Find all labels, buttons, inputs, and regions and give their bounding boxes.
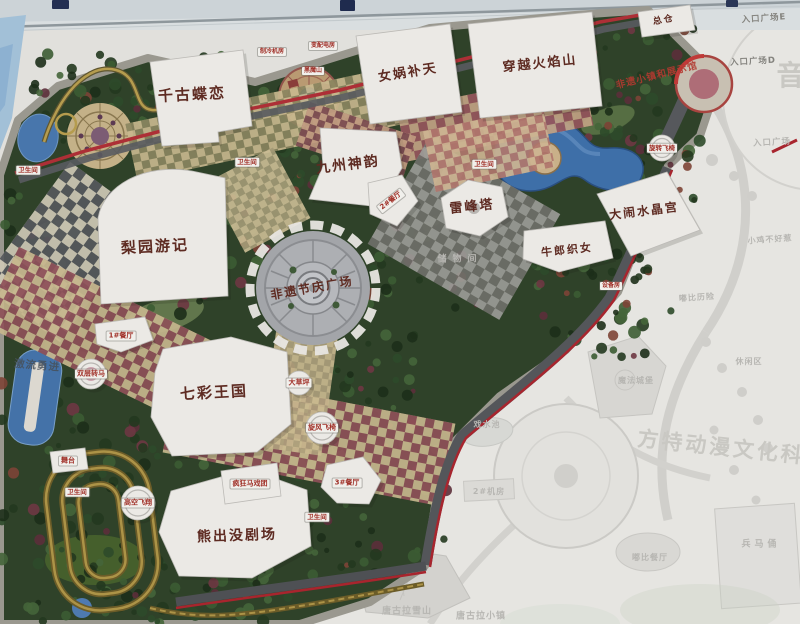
label-restaurant-3: 3#餐厅 [333,479,362,488]
label-xishuichi: 戏水池 [474,421,501,429]
label-dubi-lixian: 嘟比历险 [679,293,715,303]
label-qiangu-dielian: 千古蝶恋 [158,86,227,105]
park-map-photo: 千古蝶恋女娲补天穿越火焰山总仓九州神韵雷峰塔大闹水晶宫牛郎织女梨园游记非遗节庆广… [0,0,800,624]
label-mofa-chengbao: 魔法城堡 [618,377,654,385]
label-stage: 舞台 [59,457,77,466]
label-toilet-south: 卫生间 [305,513,329,522]
label-jiuzhou-shenyun: 九州神韵 [315,154,380,176]
label-gaokong-feixiang: 高空飞翔 [122,499,154,508]
label-chuanyue-huoyanshan: 穿越火焰山 [502,54,578,75]
label-dubi-canting: 嘟比餐厅 [632,554,668,562]
label-restaurant-2: 2#餐厅 [377,189,405,214]
label-xiongchumo-theater: 熊出没剧场 [197,528,277,545]
label-xiuxianqu: 休闲区 [736,358,763,366]
label-watermark-fantawild: 方特动漫文化科技 [636,429,800,470]
label-dacaoping: 大草坪 [287,379,312,388]
label-entrance-plaza-d: 入口广场D [730,57,776,68]
label-toilet-southwest: 卫生间 [65,488,89,497]
label-chuwujian: 储物间 [437,256,482,265]
label-tanggula-xiaozhen: 唐古拉小镇 [456,613,506,622]
label-watermark-partial: 音 [776,62,800,90]
label-xuanfeng-feiyi: 旋风飞椅 [306,424,338,433]
label-qicai-wangguo: 七彩王国 [180,384,249,403]
label-zhileng-jifang: 制冷机房 [258,48,286,56]
label-shuangceng-zhuanma: 双层转马 [75,370,107,379]
label-bingmayong: 兵马俑 [741,541,780,550]
label-xuanzhuan-feiyi: 旋转飞椅 [647,144,677,153]
label-jiliu-yongjin: 激流勇进 [14,359,61,373]
map-labels-layer: 千古蝶恋女娲补天穿越火焰山总仓九州神韵雷峰塔大闹水晶宫牛郎织女梨园游记非遗节庆广… [0,0,800,624]
label-entrance-plaza-e: 入口广场E [741,13,786,25]
label-bianpeidian-fang: 变配电房 [309,42,337,50]
label-toilet-center: 卫生间 [472,160,496,169]
label-danao-shuijinggong: 大闹水晶宫 [609,201,680,221]
label-shebeifang: 设备房 [600,282,622,290]
label-jifang-2: 2#机房 [473,488,505,496]
label-toilet-west: 卫生间 [16,166,40,175]
label-fengkuang-maxituan: 疯狂马戏团 [231,480,270,489]
label-xiaoji-buhaore: 小鸡不好惹 [747,234,792,245]
label-nvwa-butian: 女娲补天 [377,62,438,84]
label-zongcang: 总仓 [652,15,675,28]
label-leifengta: 雷峰塔 [449,198,495,216]
label-liyuan-youji: 梨园游记 [121,238,190,257]
label-niulang-zhinv: 牛郎织女 [541,242,594,258]
label-feiyi-xiaozhen-banner: 非遗小镇和展示馆 [615,61,699,91]
label-restaurant-1: 1#餐厅 [107,332,136,341]
label-feiyi-jieqing-plaza: 非遗节庆广场 [270,275,355,301]
label-entrance-plaza: 入口广场 [753,138,791,148]
label-toilet-north: 卫生间 [235,158,259,167]
label-heimoshan: 黑魔山 [302,67,324,75]
label-tanggula-xueshan: 唐古拉雪山 [382,608,432,617]
